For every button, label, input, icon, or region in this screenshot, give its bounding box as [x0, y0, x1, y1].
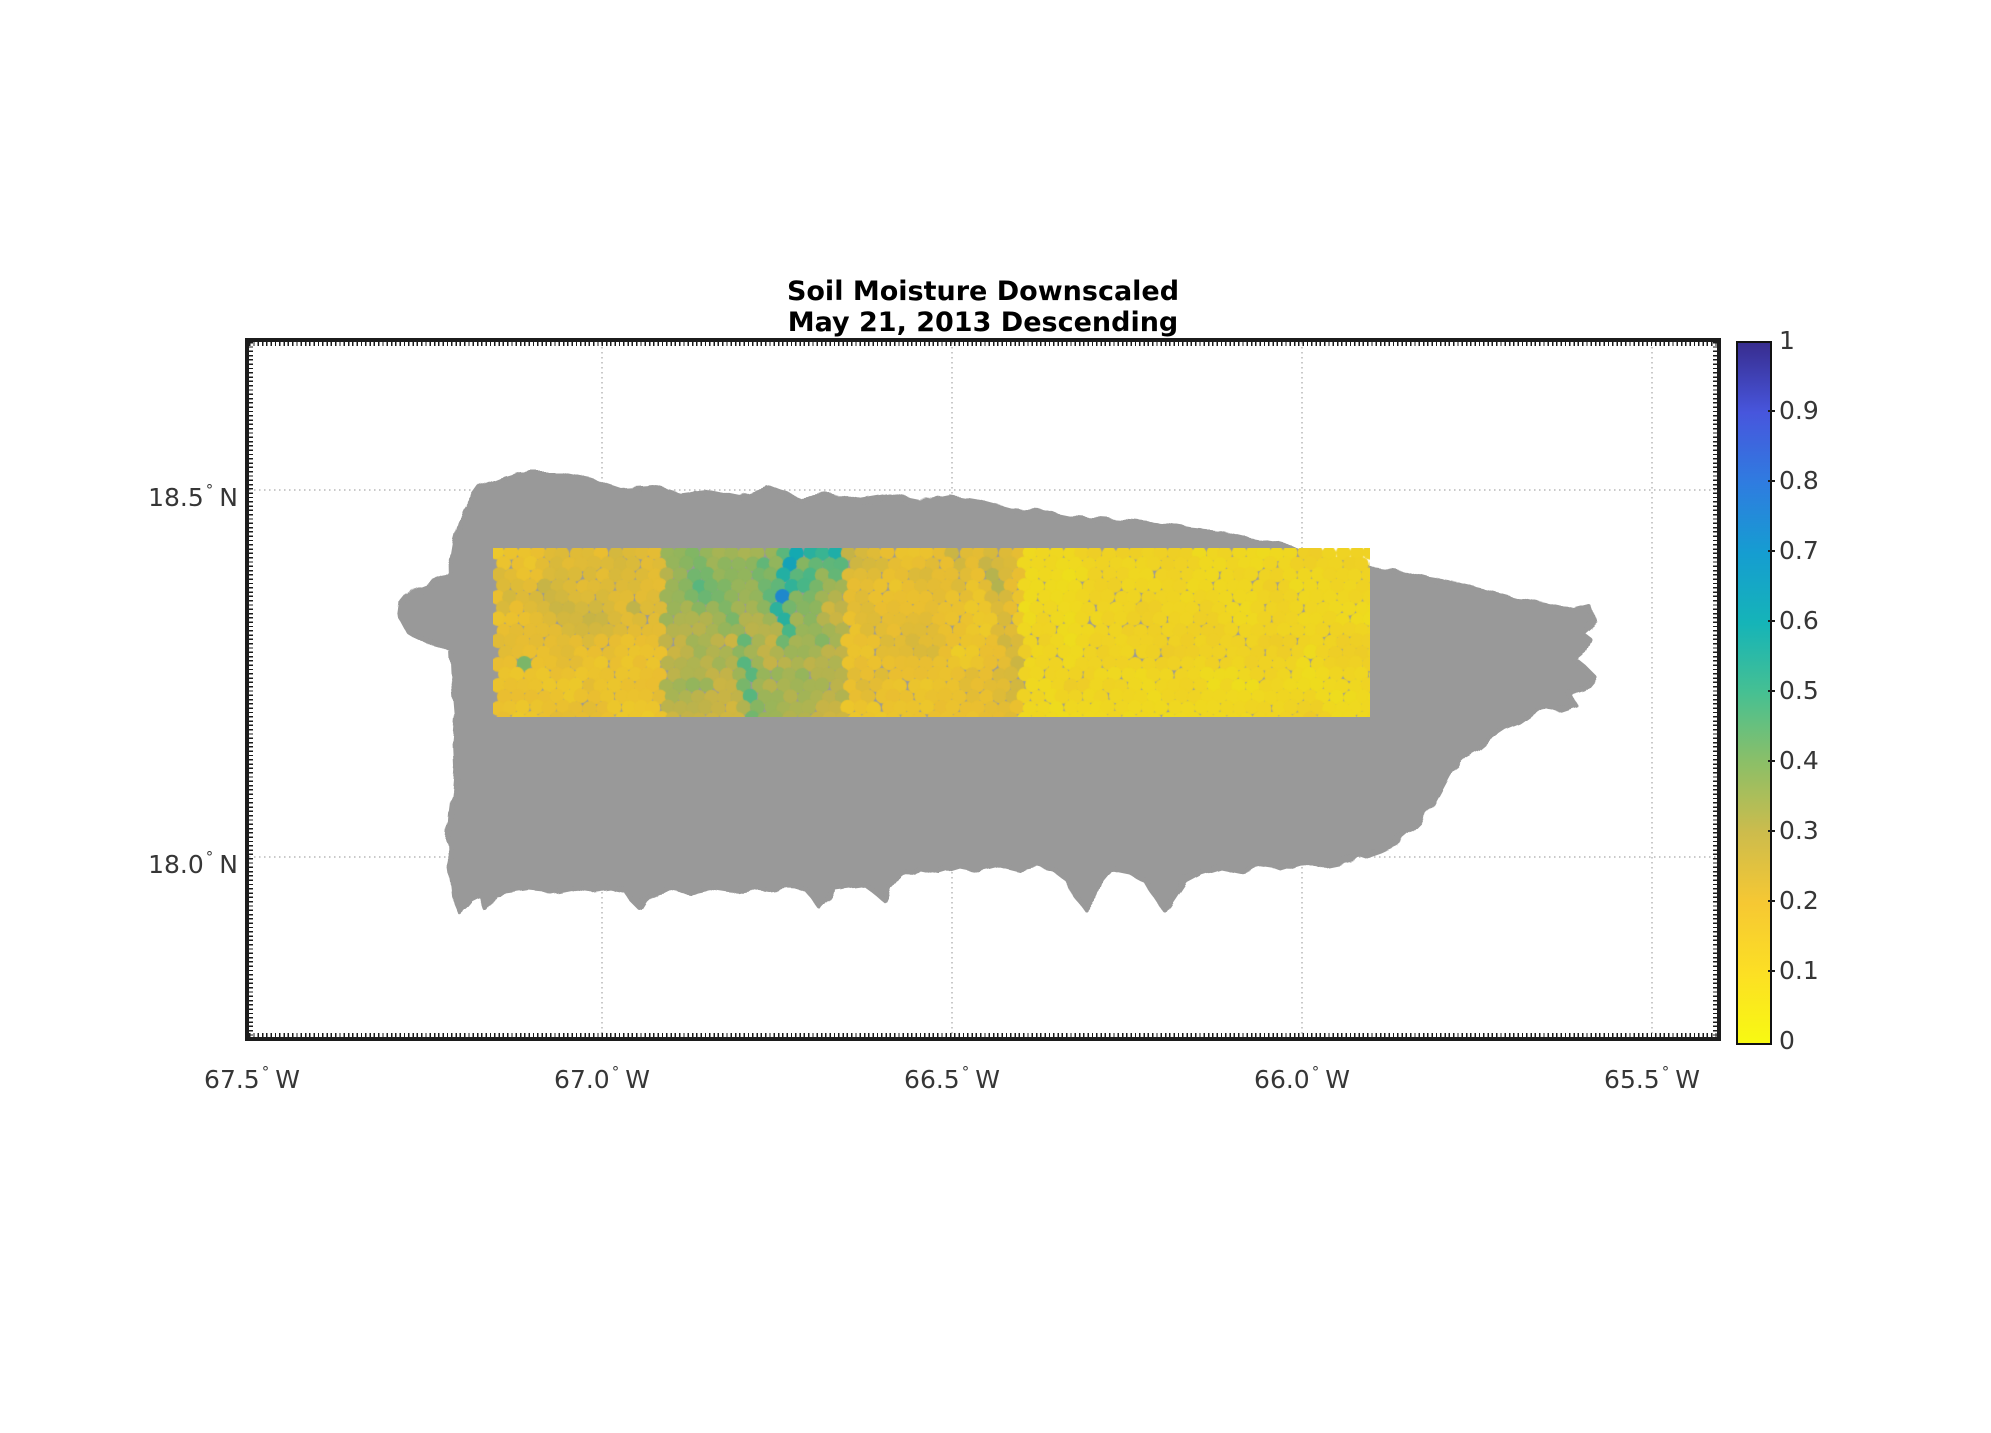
colorbar-tick: [1768, 830, 1775, 832]
colorbar-tick: [1768, 480, 1775, 482]
colorbar-tick: [1768, 620, 1775, 622]
degree-symbol: °: [206, 848, 214, 866]
colorbar-tick-label: 0: [1779, 1026, 1795, 1056]
colorbar: [1736, 341, 1772, 1045]
colorbar-tick-label: 0.4: [1779, 746, 1819, 776]
colorbar-tick: [1768, 690, 1775, 692]
x-axis-tick-label: 66.5°W: [904, 1063, 1000, 1094]
colorbar-tick: [1768, 900, 1775, 902]
chart-title: Soil Moisture Downscaled May 21, 2013 De…: [249, 276, 1717, 338]
colorbar-tick-label: 0.3: [1779, 816, 1819, 846]
degree-symbol: °: [262, 1063, 270, 1081]
x-axis-tick-label: 66.0°W: [1254, 1063, 1350, 1094]
degree-symbol: °: [962, 1063, 970, 1081]
y-axis-tick-label: 18.5°N: [118, 474, 238, 506]
y-axis-tick-label: 18.0°N: [118, 841, 238, 873]
colorbar-tick-label: 0.9: [1779, 396, 1819, 426]
colorbar-tick-label: 0.2: [1779, 886, 1819, 916]
plot-canvas-region: [249, 342, 1717, 1037]
colorbar-tick-label: 1: [1779, 326, 1795, 356]
colorbar-tick-label: 0.5: [1779, 676, 1819, 706]
colorbar-tick: [1768, 410, 1775, 412]
colorbar-tick-label: 0.8: [1779, 466, 1819, 496]
chart-title-line2: May 21, 2013 Descending: [249, 307, 1717, 338]
soil-moisture-strip: [493, 548, 1370, 717]
chart-title-line1: Soil Moisture Downscaled: [249, 276, 1717, 307]
colorbar-tick: [1768, 760, 1775, 762]
colorbar-tick-label: 0.1: [1779, 956, 1819, 986]
x-axis-tick-label: 67.5°W: [204, 1063, 300, 1094]
degree-symbol: °: [1312, 1063, 1320, 1081]
plot-area: [245, 338, 1721, 1041]
x-axis-tick-label: 67.0°W: [554, 1063, 650, 1094]
colorbar-tick-label: 0.7: [1779, 536, 1819, 566]
colorbar-tick: [1768, 550, 1775, 552]
degree-symbol: °: [206, 481, 214, 499]
figure: Soil Moisture Downscaled May 21, 2013 De…: [0, 0, 1991, 1433]
degree-symbol: °: [612, 1063, 620, 1081]
x-axis-tick-label: 65.5°W: [1604, 1063, 1700, 1094]
colorbar-tick: [1768, 970, 1775, 972]
colorbar-tick-label: 0.6: [1779, 606, 1819, 636]
degree-symbol: °: [1662, 1063, 1670, 1081]
